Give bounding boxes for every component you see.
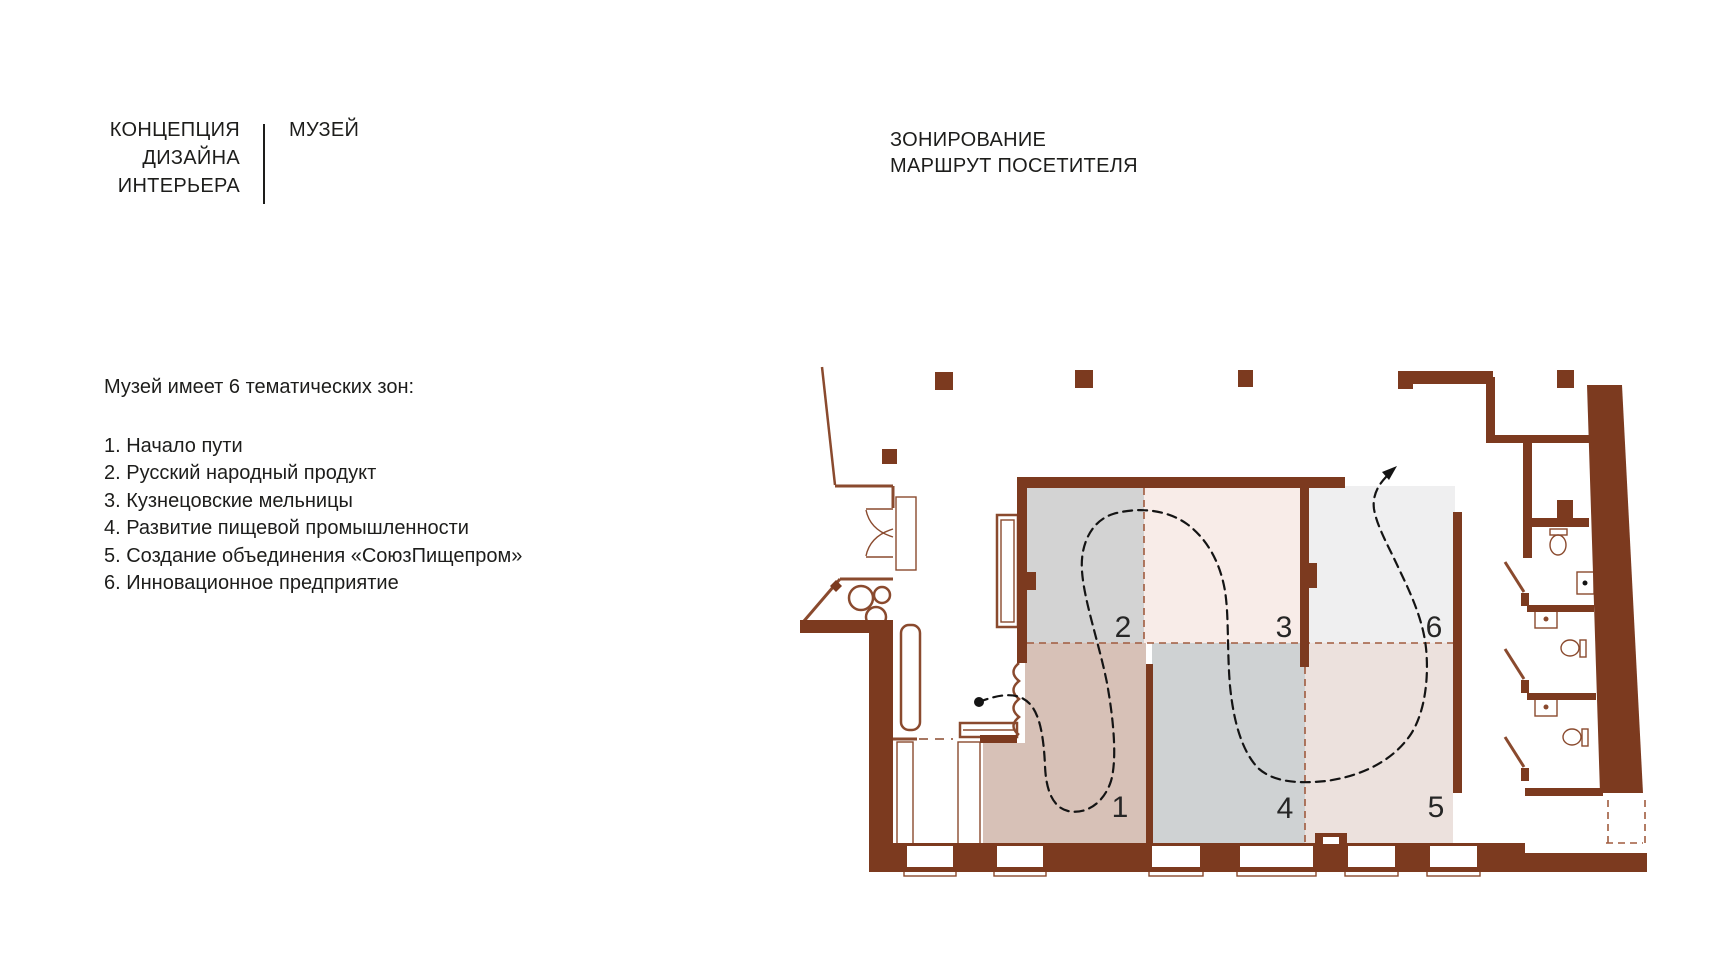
service-opening — [1606, 800, 1645, 847]
column — [882, 449, 897, 464]
zone-label-1: 1 — [1112, 791, 1129, 824]
column — [935, 372, 953, 390]
window-opening — [1430, 846, 1477, 867]
reception-counter — [960, 723, 1017, 737]
floor-plan: 1 2 3 4 5 6 — [0, 0, 1734, 968]
window-opening — [997, 846, 1043, 867]
toilet-icon — [1550, 529, 1567, 535]
wall-left — [1017, 477, 1027, 663]
wall-slanted-right — [1587, 385, 1643, 793]
stall-door — [1505, 562, 1524, 592]
column — [1075, 370, 1093, 388]
toilet-icon — [1580, 640, 1586, 657]
window-opening — [907, 846, 953, 867]
window-opening — [1240, 846, 1313, 867]
zone-label-3: 3 — [1276, 611, 1293, 644]
columns — [882, 370, 1574, 464]
window-opening — [1348, 846, 1395, 867]
column — [1557, 370, 1574, 388]
window-opening — [1152, 846, 1200, 867]
column — [1238, 370, 1253, 387]
zone-label-4: 4 — [1277, 792, 1294, 825]
display-case — [997, 515, 1018, 627]
stall-door — [1505, 737, 1524, 767]
stair-block-right — [958, 742, 980, 845]
stair-block-left — [897, 742, 913, 845]
zone-label-6: 6 — [1426, 611, 1443, 644]
toilet-icon — [1582, 729, 1588, 746]
bench — [901, 625, 920, 730]
wall-right — [1453, 512, 1462, 793]
entrance-porch — [896, 497, 916, 570]
wall-lobby — [869, 633, 893, 872]
zone-label-5: 5 — [1428, 791, 1445, 824]
wc-fixtures — [1505, 529, 1594, 767]
wall-top — [1017, 477, 1345, 488]
wall-1-4 — [1146, 664, 1153, 845]
stall-door — [1505, 649, 1524, 679]
slide: КОНЦЕПЦИЯ ДИЗАЙНА ИНТЕРЬЕРА МУЗЕЙ ЗОНИРО… — [0, 0, 1734, 968]
facade-angled-wall — [822, 367, 835, 485]
entrance-double-door — [866, 509, 893, 557]
zone-label-2: 2 — [1115, 611, 1132, 644]
